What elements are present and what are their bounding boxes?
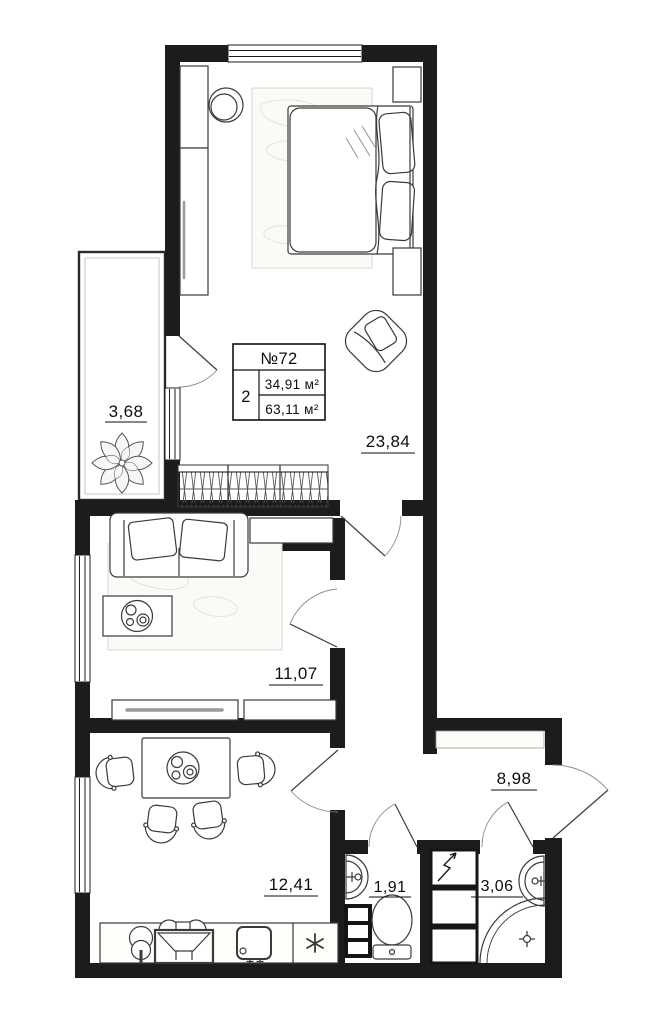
shower bbox=[480, 898, 545, 963]
bed bbox=[288, 106, 415, 254]
door-balcony bbox=[179, 336, 217, 387]
svg-text:3,68: 3,68 bbox=[109, 402, 144, 421]
unit-number: №72 bbox=[260, 350, 297, 368]
svg-text:1,91: 1,91 bbox=[374, 879, 407, 896]
mirror bbox=[209, 88, 243, 122]
label-kitchen: 12,41 bbox=[264, 875, 318, 896]
unit-total-area: 63,11 м² bbox=[265, 402, 319, 417]
toilet bbox=[372, 895, 412, 959]
label-wc: 1,91 bbox=[369, 879, 411, 897]
stove bbox=[155, 920, 213, 963]
floor-plan-svg: 3,68 23,84 11,07 12,41 1,91 3,06 8,98 bbox=[0, 0, 650, 1024]
label-bathroom: 3,06 bbox=[471, 878, 523, 897]
door-kitchen bbox=[291, 750, 338, 812]
electrical-shaft bbox=[431, 850, 477, 963]
window-bedroom-top bbox=[228, 45, 362, 62]
svg-text:12,41: 12,41 bbox=[269, 875, 314, 894]
window-living-left bbox=[75, 555, 90, 682]
unit-rooms-count: 2 bbox=[241, 388, 251, 406]
floor-plan-page: 3,68 23,84 11,07 12,41 1,91 3,06 8,98 bbox=[0, 0, 650, 1024]
door-bedroom bbox=[341, 516, 401, 556]
nightstand-1 bbox=[393, 67, 421, 102]
label-living-room: 11,07 bbox=[269, 664, 323, 685]
window-bedroom-left bbox=[165, 388, 180, 460]
wardrobe bbox=[180, 66, 208, 295]
window-kitchen-left bbox=[75, 777, 90, 893]
svg-text:8,98: 8,98 bbox=[497, 769, 532, 788]
armchair bbox=[339, 304, 413, 378]
door-living-room bbox=[290, 589, 337, 647]
coffee-table bbox=[103, 596, 172, 636]
plant bbox=[92, 433, 152, 493]
sideboard bbox=[250, 518, 333, 543]
label-balcony: 3,68 bbox=[105, 402, 147, 422]
kitchen-sink bbox=[237, 927, 271, 965]
label-bedroom: 23,84 bbox=[361, 432, 415, 453]
unit-card: №72 2 34,91 м² 63,11 м² bbox=[233, 344, 325, 420]
towel-rail bbox=[346, 906, 370, 956]
sofa bbox=[110, 513, 248, 577]
dining-table bbox=[142, 738, 230, 798]
hanger-closet bbox=[178, 465, 328, 507]
svg-text:11,07: 11,07 bbox=[274, 664, 317, 683]
label-hallway: 8,98 bbox=[491, 769, 537, 790]
wc-sink bbox=[346, 855, 368, 899]
door-bathroom bbox=[482, 802, 533, 847]
svg-text:3,06: 3,06 bbox=[481, 878, 514, 895]
door-entrance bbox=[553, 765, 608, 838]
hallway-niche bbox=[436, 731, 544, 748]
door-wc bbox=[369, 804, 417, 847]
unit-living-area: 34,91 м² bbox=[265, 377, 320, 392]
nightstand-2 bbox=[393, 248, 421, 295]
svg-text:23,84: 23,84 bbox=[366, 432, 411, 451]
tv-stand bbox=[112, 700, 336, 720]
